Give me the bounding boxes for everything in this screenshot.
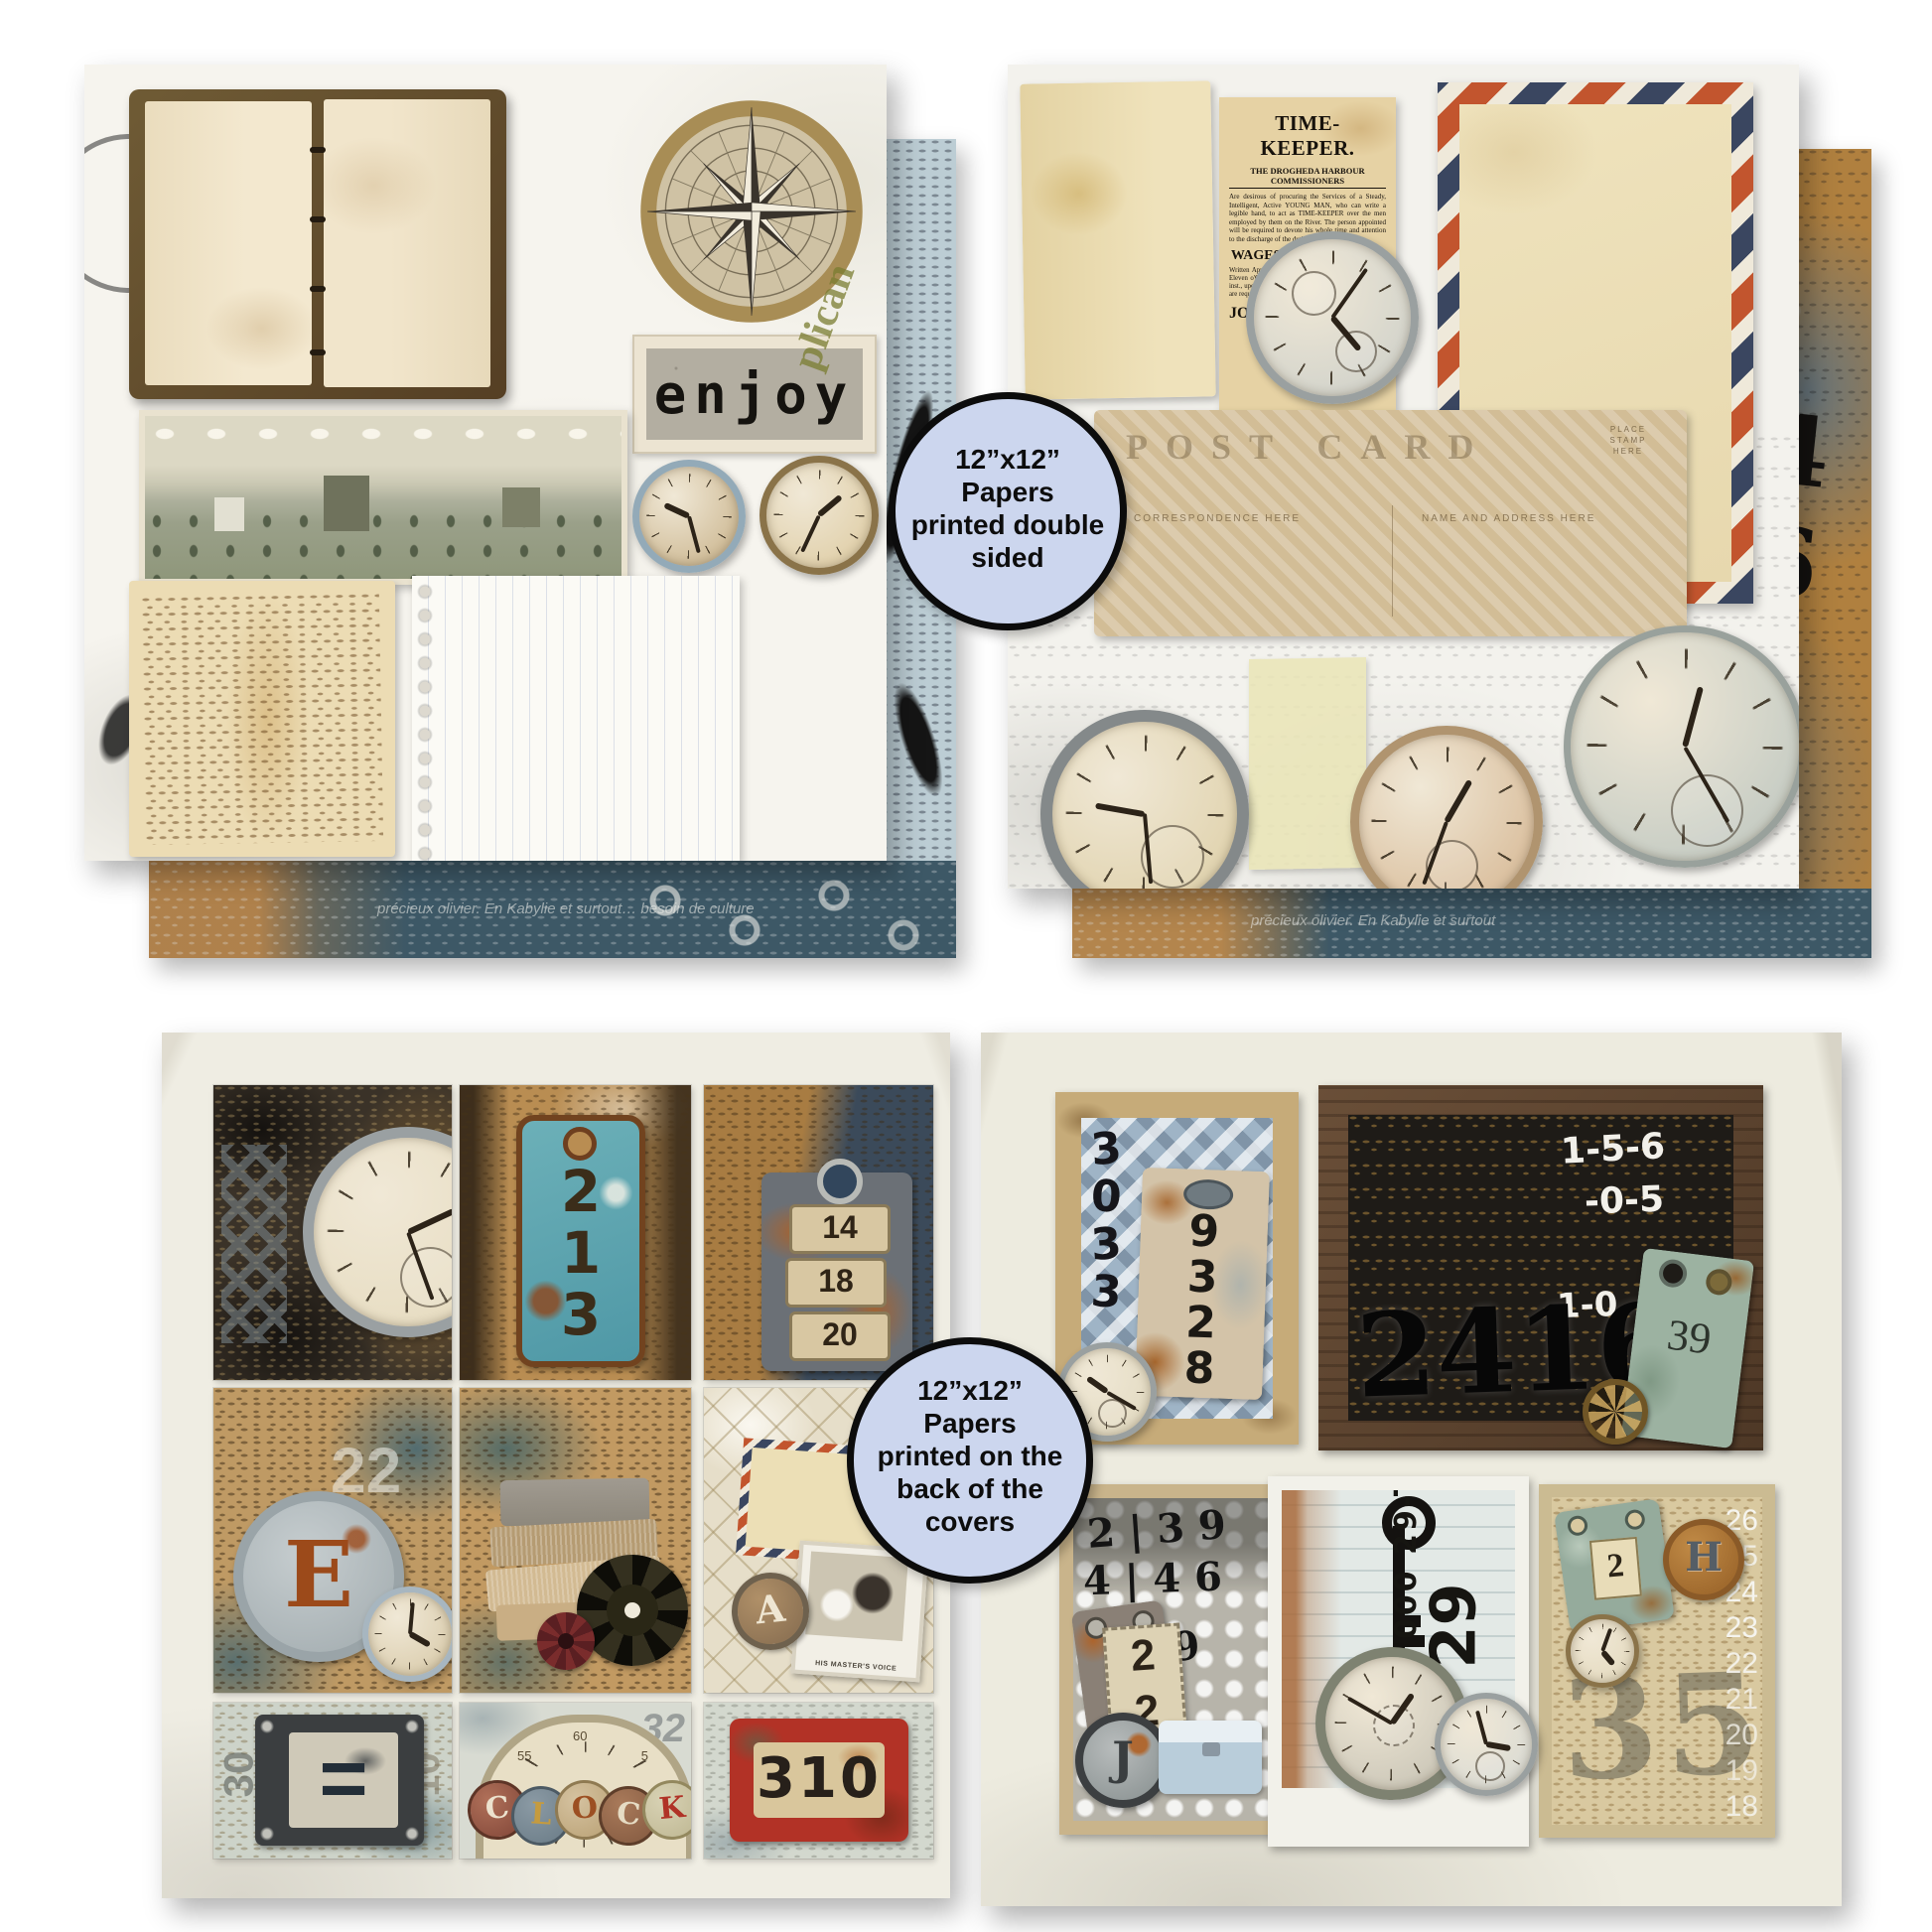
hotel-tag: 2 1 3 [516,1115,645,1367]
letter-j-disc: J [1075,1713,1171,1808]
town-building [502,487,540,527]
grommet-hole [817,1159,863,1204]
pocket-watch-silver [1246,231,1419,404]
plate-number: 20 [822,1316,858,1352]
badge-line: back of the [854,1472,1086,1505]
side-number: 22 [1725,1646,1758,1682]
manuscript-note [129,581,395,857]
badge-line: covers [854,1505,1086,1538]
equals-sign: = [319,1731,367,1825]
binding-stitch [310,147,326,153]
pocket-watch-small [1435,1693,1538,1796]
numbered-metal-tag: 14 18 20 [761,1173,912,1371]
number-plate: 14 [789,1204,891,1254]
square-tag-213: 2 1 3 [460,1085,691,1380]
tag-2h-frame: 35 26 25 24 23 22 21 20 19 18 2 H [1539,1484,1775,1838]
equals-plate: = [255,1715,424,1846]
reel-hole [624,1602,640,1618]
product-collage: précieux olivier. En Kabylie et surtout…… [0,0,1932,1932]
badge-double-sided: 12”x12” Papers printed double sided [889,392,1127,630]
plate-310-inner: 310 [754,1742,885,1818]
disc-letter: L [529,1796,552,1832]
enjoy-label: enjoy [632,335,877,454]
badge-line: printed double [896,508,1120,541]
chalk-number: -0-5 [1584,1179,1664,1223]
postcard-left-label: CORRESPONDENCE HERE [1134,513,1301,524]
tag-hole [563,1127,597,1161]
stencil-digit: 3 [1089,1220,1123,1270]
plate-digit: 9 [1140,1207,1269,1257]
plate-number: 18 [818,1263,854,1299]
square-equals-plate: 30 10 = [213,1703,452,1859]
craft-paper-top-right: TIME-KEEPER. THE DROGHEDA HARBOUR COMMIS… [1008,65,1799,889]
clock-face-roman [632,460,746,573]
badge-line: 12”x12” [896,443,1120,476]
polaroid-clocks: 29 000 29-T [1268,1476,1529,1847]
letter-h: H [1685,1534,1723,1581]
square-plate-310: 310 [704,1703,933,1859]
washi-tape [1249,657,1366,870]
rusty-plate-9328: 9 3 2 8 [1135,1168,1270,1400]
badge-line: sided [896,541,1120,574]
disc-letter: C [483,1790,510,1827]
tag-hole [1567,1514,1589,1537]
side-number: 18 [1725,1789,1758,1825]
plate-patch: = [289,1732,398,1828]
chevron-marks [221,1145,287,1343]
letter-e: E [284,1521,353,1628]
journal-page-left [145,101,312,385]
number-plate: 18 [785,1258,887,1308]
book [500,1478,650,1527]
cover-back-paper-left: 2 1 3 14 18 20 22 E [162,1033,950,1898]
badge-line: printed on the [854,1440,1086,1472]
stamp-line: HERE [1588,446,1668,457]
open-journal [129,89,506,399]
binding-stitch [310,349,326,355]
side-number: 19 [1725,1753,1758,1789]
chalk-number: 1-5-6 [1560,1126,1666,1172]
card-caption: HIS MASTER'S VOICE [795,1659,916,1674]
tin-box [1159,1721,1262,1794]
plate-digit: 3 [1138,1253,1267,1303]
square-letter-e: 22 E [213,1388,452,1693]
chalkboard-inner: 1-5-6 -0-5 1-0 2416 39 [1348,1115,1733,1421]
small-watch [1566,1614,1639,1688]
notebook-page [412,576,740,861]
badge-line: 12”x12” [854,1374,1086,1407]
tag-digit: 2 [1105,1626,1180,1687]
clipping-subhead: THE DROGHEDA HARBOUR COMMISSIONERS [1229,166,1386,189]
clock-letter-discs: C L O C K [468,1774,686,1844]
stencil-digit: 3 [1089,1125,1124,1174]
cover-back-paper-right: 3 0 3 3 9 3 2 8 [981,1033,1842,1906]
side-number: 23 [1725,1610,1758,1646]
plate-number: 14 [822,1209,858,1245]
binding-stitch [310,216,326,222]
postcard: POST CARD CORRESPONDENCE HERE NAME AND A… [1094,410,1687,636]
tag-hole [1705,1268,1733,1297]
tag-digit: 3 [522,1284,639,1345]
pocket-watch-large [1564,625,1799,868]
postcard-title: POST CARD [1126,426,1491,468]
tin-clasp [1202,1742,1220,1756]
postcard-right-label: NAME AND ADDRESS HERE [1422,513,1595,524]
square-books-reel [460,1388,691,1693]
flower [537,1612,595,1670]
square-tag-141820: 14 18 20 [704,1085,933,1380]
letter-h-disc: H [1663,1519,1744,1600]
verdigris-tag: 2 [1554,1498,1675,1633]
rotated-label: 000 29-T [1389,1490,1424,1639]
letter-j: J [1112,1731,1134,1785]
frame-9328: 3 0 3 3 9 3 2 8 [1055,1092,1299,1445]
tag-hole [1657,1258,1688,1289]
disc-letter: C [616,1796,642,1833]
letter-a: A [754,1586,787,1633]
plate-310-number: 310 [757,1746,882,1811]
rosette-button [1583,1379,1648,1445]
strip-text: précieux olivier. En Kabylie et surtout [1251,912,1495,929]
disc-letter: K [657,1790,686,1827]
disc-letter: O [571,1790,599,1826]
binding-stitch [310,286,326,292]
square-pocket-watch [213,1085,452,1380]
stamp-box: PLACE STAMP HERE [1588,424,1668,487]
tag-digit: 1 [522,1222,639,1284]
chalkboard-frame: 1-5-6 -0-5 1-0 2416 39 [1318,1085,1763,1450]
card-number: 2 [1605,1547,1625,1585]
panorama-photo [139,410,627,585]
number-card: 2 [1589,1537,1642,1600]
town-building [324,476,369,531]
stamp-line: STAMP [1588,435,1668,446]
grunge-strip: précieux olivier. En Kabylie et surtout [1072,889,1871,958]
stamp-line: PLACE [1588,424,1668,435]
perforation-holes [412,580,438,861]
town-building [214,497,244,531]
badge-line: Papers [896,476,1120,508]
plate-digit: 2 [1137,1299,1266,1348]
strip-text: précieux olivier. En Kabylie et surtout…… [377,900,755,917]
plate-310: 310 [730,1719,908,1842]
clipping-headline: TIME-KEEPER. [1229,111,1386,161]
side-number: 21 [1725,1682,1758,1718]
tag-39-number: 39 [1631,1305,1747,1368]
clouds [145,422,621,448]
craft-paper-top-left: enjoy plican [84,65,887,861]
journal-page-right [324,99,490,387]
gramophone-image [805,1551,908,1641]
clock-face-arabic [759,456,879,575]
postcard-divider [1392,505,1393,617]
square-clock-word: 32 50 55 60 5 10 C L O C K [460,1703,691,1859]
handwritten-row: 2 | 3 9 [1086,1501,1228,1558]
stencil-number-column: 3 0 3 3 [1091,1126,1122,1316]
badge-line: Papers [854,1407,1086,1440]
stencil-digit: 3 [1089,1268,1123,1317]
tag-digit: 2 [522,1161,639,1222]
numbers-frame: 2 | 3 9 4 | 4 6 2 9 2 2 J [1059,1484,1291,1835]
small-clock [362,1587,452,1682]
aged-book-page [1020,80,1216,399]
flower-center [558,1633,574,1649]
stencil-digit: 0 [1090,1173,1123,1222]
badge-back-of-covers: 12”x12” Papers printed on the back of th… [847,1337,1093,1584]
tag-hole [1623,1508,1646,1531]
grunge-strip: précieux olivier. En Kabylie et surtout…… [149,861,956,958]
handwritten-row: 4 | 4 6 [1082,1554,1222,1605]
side-number: 20 [1725,1718,1758,1753]
